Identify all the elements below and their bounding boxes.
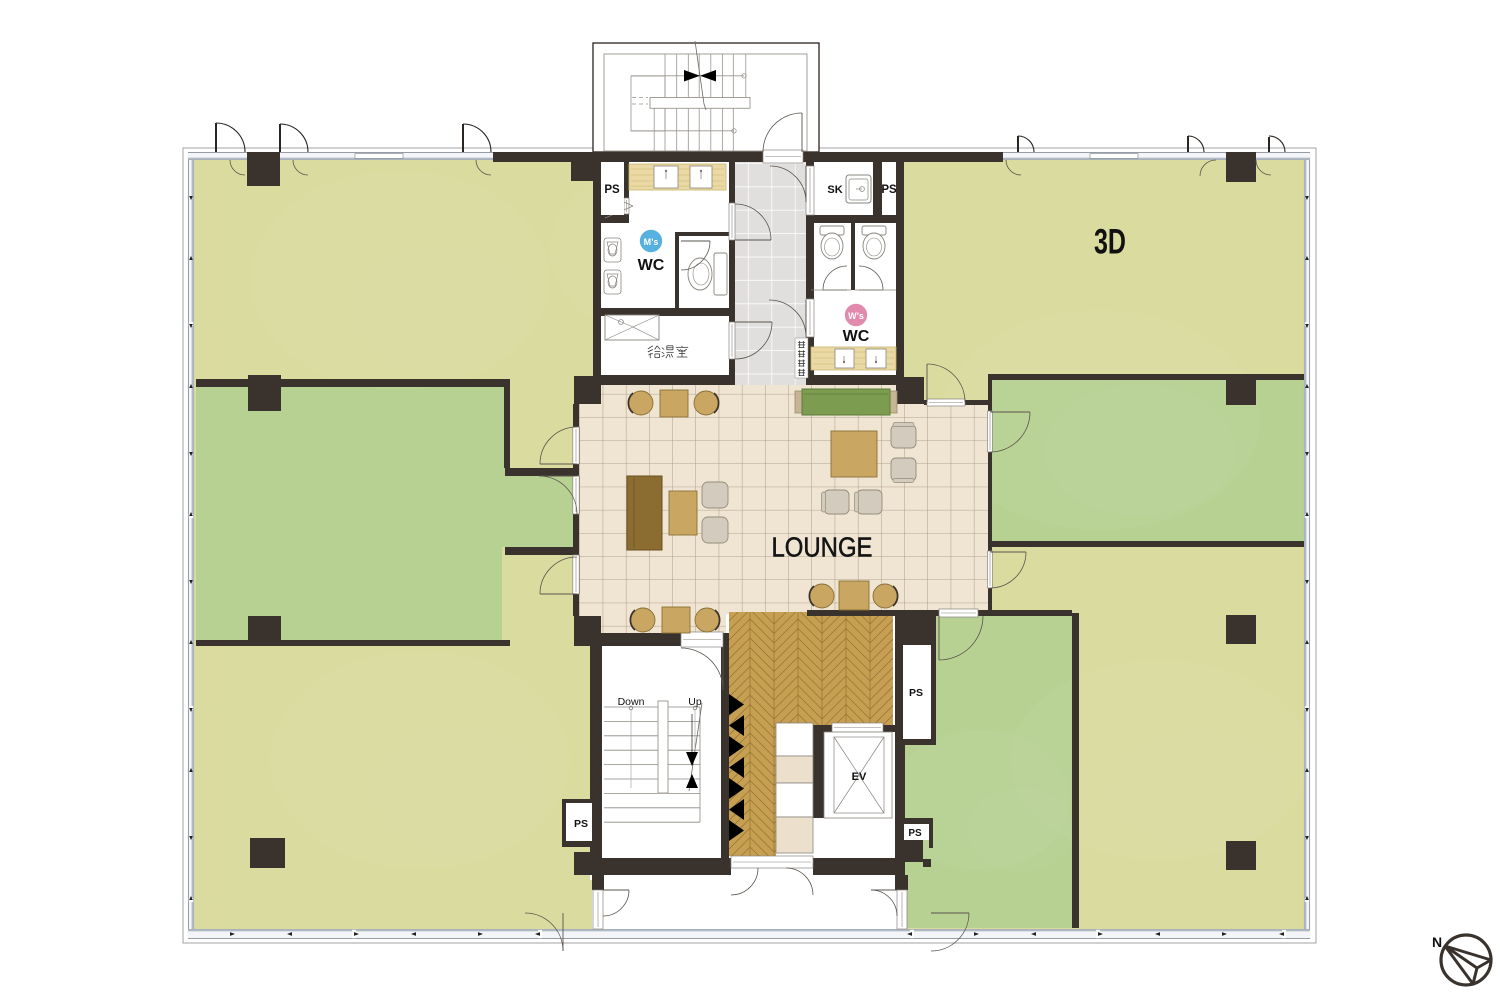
svg-text:Up: Up <box>688 696 702 708</box>
svg-text:SK: SK <box>827 184 842 196</box>
svg-text:WC: WC <box>638 257 665 274</box>
svg-text:N: N <box>1432 934 1442 950</box>
svg-text:3D: 3D <box>1094 223 1126 262</box>
svg-text:WC: WC <box>843 328 870 345</box>
svg-text:W’s: W’s <box>848 311 864 321</box>
svg-text:PS: PS <box>881 184 897 196</box>
svg-text:LOUNGE: LOUNGE <box>772 532 873 563</box>
svg-text:Down: Down <box>618 696 645 708</box>
svg-text:PS: PS <box>908 828 922 839</box>
svg-text:EV: EV <box>852 771 867 783</box>
svg-text:M’s: M’s <box>644 237 659 247</box>
svg-text:PS: PS <box>604 184 620 196</box>
svg-text:PS: PS <box>574 818 588 830</box>
svg-text:PS: PS <box>909 687 923 699</box>
